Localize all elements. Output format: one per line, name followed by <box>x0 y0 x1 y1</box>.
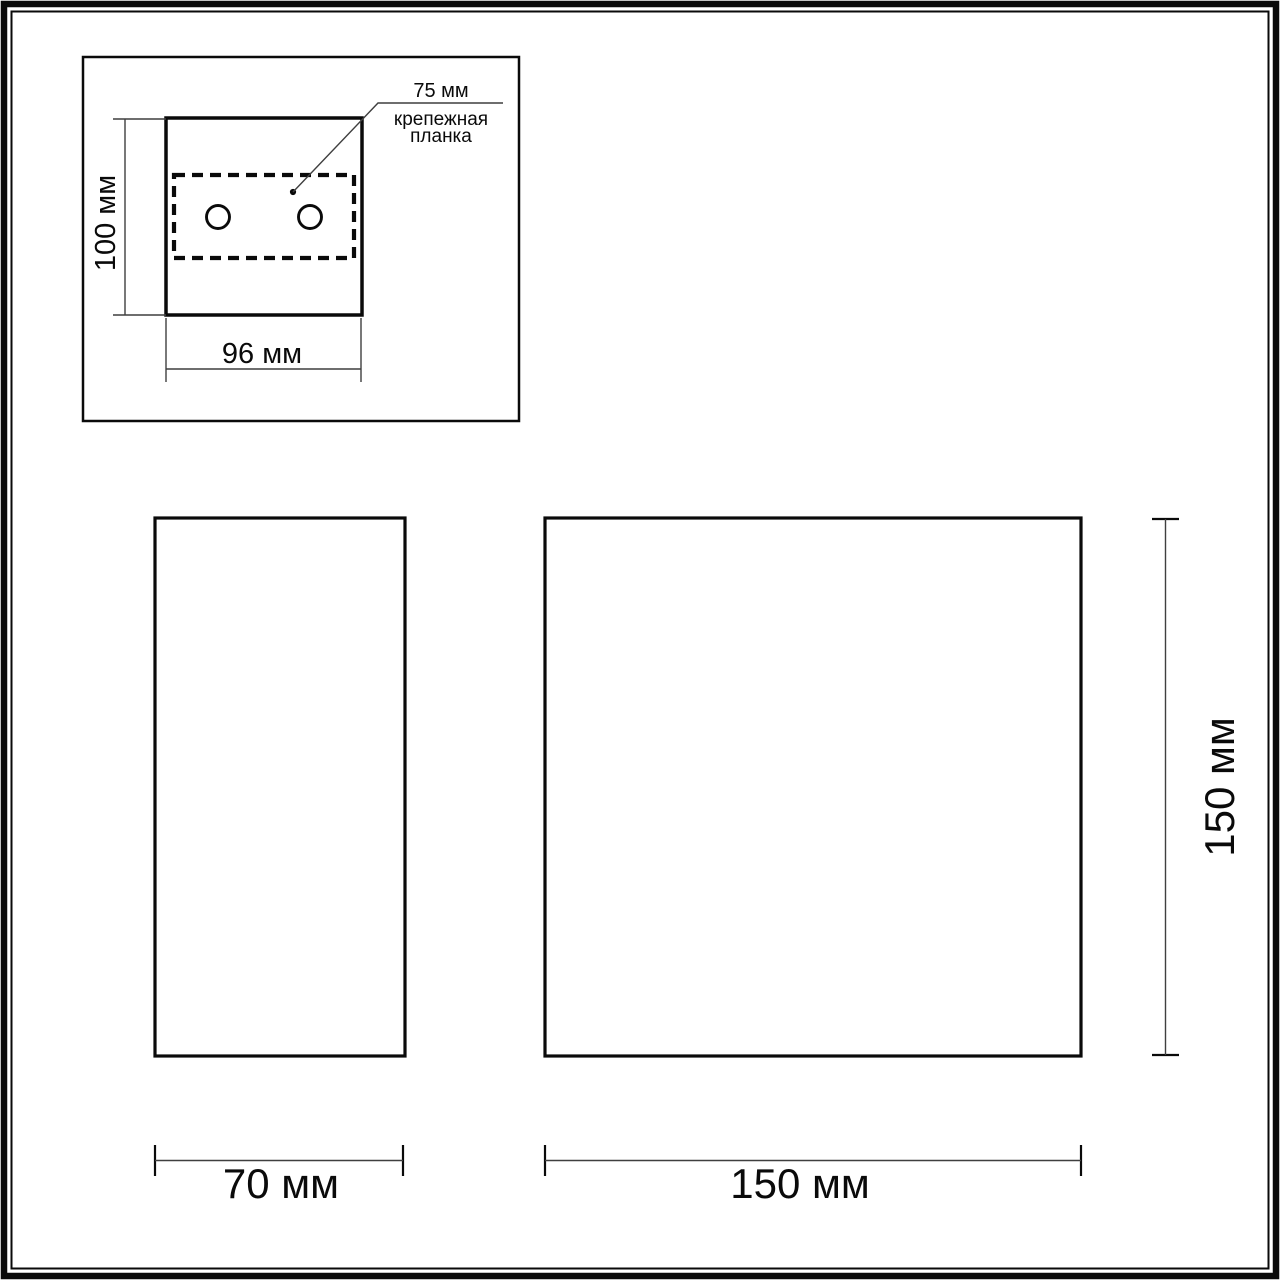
side-view-outline <box>155 518 405 1056</box>
mounting-detail-inset: 75 мм крепежная планка 100 мм 96 мм <box>83 57 519 421</box>
inset-height-dimension: 100 мм <box>90 119 166 315</box>
front-view-outline <box>545 518 1081 1056</box>
inset-width-dimension: 96 мм <box>166 318 361 382</box>
front-height-dimension: 150 мм <box>1152 519 1243 1055</box>
mounting-plate-dashed-outline <box>174 175 354 258</box>
outer-border <box>4 4 1276 1276</box>
side-width-label: 70 мм <box>223 1160 339 1207</box>
inset-height-label: 100 мм <box>90 175 122 271</box>
fixture-back-outline <box>166 118 362 315</box>
page-frame <box>4 4 1276 1276</box>
side-width-dimension: 70 мм <box>155 1145 403 1207</box>
front-height-label: 150 мм <box>1196 717 1243 857</box>
front-width-dimension: 150 мм <box>545 1145 1081 1207</box>
dimension-drawing: 75 мм крепежная планка 100 мм 96 мм <box>0 0 1280 1280</box>
hole-spacing-label: 75 мм <box>413 80 468 102</box>
side-view: 70 мм <box>155 518 405 1207</box>
drawing-canvas: 75 мм крепежная планка 100 мм 96 мм <box>0 0 1280 1280</box>
mounting-hole-right <box>299 206 322 229</box>
mounting-hole-left <box>207 206 230 229</box>
front-width-label: 150 мм <box>730 1160 870 1207</box>
front-view: 150 мм 150 мм <box>545 518 1243 1207</box>
inset-width-label: 96 мм <box>222 338 302 370</box>
plate-label-line2: планка <box>410 126 472 147</box>
